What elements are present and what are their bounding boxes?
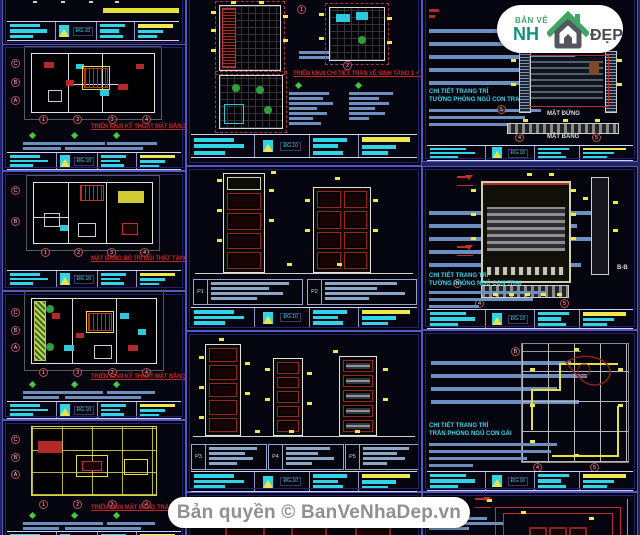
door-code: P5 (346, 445, 360, 469)
sheet-code: ĐG.10 (74, 275, 94, 284)
sheet-wall-decor-detail-2: B-B B 45 CHI TIẾT TRANG TRÍ TƯỜNG PHÒNG … (422, 166, 638, 330)
door-code: P4 (269, 445, 283, 469)
fixture (44, 213, 60, 227)
grid-col-bubbles: 1234 (39, 115, 151, 124)
wall-elevation (481, 181, 571, 283)
triangle-logo-icon (59, 25, 69, 37)
diamond-marker (113, 381, 120, 388)
diamond-marker (71, 132, 78, 139)
ceiling-soffit-polyline (552, 406, 618, 456)
sheet-code: ĐG.10 (280, 142, 300, 151)
title-block: ĐG.10 (7, 21, 179, 41)
hatch-strip (222, 8, 236, 68)
sheet-code: ĐG.10 (73, 27, 93, 36)
house-icon (547, 10, 589, 50)
furniture (128, 345, 138, 351)
annotation-mark (429, 15, 435, 18)
elevation-label: MẶT ĐỨNG (547, 111, 580, 117)
door-panels (343, 360, 373, 432)
door-code: P1 (194, 280, 208, 304)
door-spec-table: P3 (191, 444, 267, 470)
spec-lines (206, 445, 266, 469)
logo-name-left: NH (513, 24, 539, 45)
wood-detail (589, 61, 599, 75)
title-block: ĐG.10 (427, 309, 633, 329)
diamond-marker (71, 381, 78, 388)
fixture (100, 90, 109, 96)
door-elevation (273, 358, 303, 436)
sheet-ceiling-decor-detail: B CHI TIẾT TRANG TRÍ TRẦN PHÒNG NGỦ CON … (422, 330, 638, 492)
dimension-line (627, 499, 628, 535)
door-spec-table: P5 (345, 444, 419, 470)
room-fill (118, 191, 144, 203)
furniture (66, 80, 74, 86)
double-door-elevation (313, 187, 371, 273)
wall-line (116, 299, 117, 363)
diamond-marker (113, 512, 120, 519)
grid-bubble: 1 (297, 5, 307, 14)
triangle-logo-icon (263, 312, 273, 324)
ground-line (195, 273, 413, 274)
furniture (136, 64, 144, 69)
ceiling-soffit-polyline (532, 364, 618, 430)
sheet-code: ĐG.10 (74, 157, 94, 166)
furniture (44, 62, 54, 68)
plant (46, 343, 54, 351)
door-panels (344, 191, 368, 269)
title-block: ĐG.10 (191, 307, 417, 328)
tile-band (487, 267, 565, 275)
grid-bubble: 5 (497, 105, 507, 114)
plant (46, 305, 54, 313)
triangle-logo-icon (263, 476, 273, 488)
spec-lines (208, 280, 302, 304)
detail-title-line1: CHI TIẾT TRANG TRÍ (429, 423, 488, 430)
diamond-marker (71, 512, 78, 519)
hatch-strip (34, 301, 46, 361)
furniture (118, 84, 128, 90)
highlight-bar (103, 8, 179, 13)
sheet-caption: TRIỂN KHAI CHI TIẾT TRẦN VỆ SINH TẦNG 1 … (293, 71, 441, 77)
sheet-code: ĐG.10 (280, 477, 300, 486)
furniture (52, 313, 60, 319)
ceiling-panel (38, 441, 62, 453)
top-edge (483, 183, 569, 185)
title-block: ĐG.10 (7, 152, 181, 170)
louver-door-elevation (339, 356, 377, 436)
door-panels (277, 362, 299, 432)
spec-lines (360, 445, 418, 469)
floor-plan-drawing (33, 182, 153, 244)
cad-collage-page: ĐG.10 CBA 1234 TRIỂN KHAI KỸ THUẬT MẶT B… (0, 0, 640, 535)
fixture (64, 345, 74, 351)
sheet-crop-top-left: ĐG.10 (2, 0, 186, 46)
ceiling-detail-plan (219, 75, 283, 129)
sheet-code: ĐG.10 (508, 149, 528, 158)
fixture (336, 14, 350, 22)
furniture (122, 223, 138, 235)
floor-plan-drawing (31, 298, 157, 364)
copyright-text: Bản quyền © BanVeNhaDep.vn (177, 502, 461, 524)
sheet-caption: MẶT BẰNG BỐ TRÍ NỘI THẤT TẦNG 2 (91, 256, 193, 262)
door-code: P3 (192, 445, 206, 469)
fixture (94, 345, 112, 359)
ceiling-light (578, 364, 590, 376)
title-block: ĐG.10 (427, 145, 633, 161)
grid-bubbles: 45 (515, 133, 601, 142)
door-panels (317, 191, 341, 269)
fixture (78, 223, 96, 237)
door-spec-table: P1 (193, 279, 303, 305)
sheet-code: ĐG.10 (280, 313, 300, 322)
sheet-floor-plan-1: CBA 1234 TRIỂN KHAI KỸ THUẬT MẶT BẰNG TẦ… (2, 44, 186, 171)
fixture (356, 12, 368, 20)
title-block: ĐG.10 (191, 471, 417, 492)
note-lines (289, 92, 333, 125)
triangle-logo-icon (60, 155, 70, 167)
door-spec-table: P4 (268, 444, 344, 470)
ceiling-detail-plan (219, 5, 281, 71)
ceiling-detail (82, 461, 102, 471)
sheet-code: ĐG.10 (508, 477, 528, 486)
triangle-logo-icon (60, 273, 70, 285)
door-spec-table: P2 (307, 279, 417, 305)
title-block: ĐG.10 (427, 471, 633, 491)
sheet-code: ĐG.10 (508, 315, 528, 324)
diamond-marker (29, 512, 36, 519)
grid-row-bubbles: CBA (11, 308, 20, 352)
triangle-logo-icon (60, 404, 70, 416)
stair (80, 185, 104, 201)
wall-line (68, 183, 69, 243)
diamond-marker (29, 132, 36, 139)
triangle-logo-icon (492, 475, 502, 487)
diamond-marker (295, 82, 302, 89)
title-block: ĐG.10 (7, 401, 181, 419)
fixture (48, 90, 62, 102)
door-panels (209, 348, 237, 432)
title-block: ĐG.10 (191, 134, 417, 158)
triangle-logo-icon (492, 147, 502, 159)
ceiling-plan-drawing (31, 426, 157, 496)
stair (84, 68, 108, 88)
sheet-floor-plan-3: CBA 1234 TRIỂN KHAI KỸ THUẬT MẶT BẰNG TẦ… (2, 291, 186, 420)
grid-row-bubbles: CB (11, 186, 20, 226)
note-lines (349, 92, 393, 120)
plant (256, 86, 264, 94)
logo-name-right: ĐẸP (590, 27, 623, 45)
site-logo: BẢN VẼ NH ĐẸP (497, 5, 623, 53)
diamond-marker (355, 82, 362, 89)
floor-plan-drawing (31, 53, 155, 113)
detail-title-line1: CHI TIẾT TRANG TRÍ (429, 273, 488, 280)
note-list (289, 83, 333, 125)
section-strip (591, 177, 609, 275)
sheet-ceiling-plan: CBA 1234 TRIỂN KHAI MẶT BẰNG TRẦN TẦNG 1… (2, 420, 186, 535)
detail-title-line2: TƯỜNG PHÒNG NGỦ CON TRAI (429, 281, 521, 288)
spec-lines (283, 445, 343, 469)
ceiling-frame (124, 459, 148, 475)
annotation-mark (429, 9, 439, 12)
door-panels (227, 193, 261, 269)
copyright-badge: Bản quyền © BanVeNhaDep.vn (168, 497, 470, 528)
wall-line (106, 183, 107, 243)
spec-lines (322, 280, 416, 304)
sheet-door-elevations-2: P3 P4 P5 ĐG.10 (186, 331, 422, 492)
detail-title-line2: TƯỜNG PHÒNG NGỦ CON TRAI (429, 97, 521, 104)
slat-band (487, 207, 565, 251)
sheet-door-elevations-1: P1 P2 ĐG.10 (186, 166, 422, 331)
note-list (349, 83, 393, 120)
door-top (549, 527, 567, 535)
detail-title-line2: TRẦN PHÒNG NGỦ CON GÁI (429, 431, 512, 438)
plant (264, 106, 272, 114)
ceiling-curve-decor (566, 356, 610, 385)
fixture (138, 329, 146, 335)
furniture (76, 333, 84, 338)
sheet-ceiling-details: 1 2 TRIỂN KHAI CHI TIẾT TRẦN VỆ SINH TẦN… (186, 0, 422, 166)
triangle-logo-icon (263, 140, 273, 152)
grid-row-bubbles: CBA (11, 435, 20, 479)
door-code: P2 (308, 280, 322, 304)
diamond-marker (113, 132, 120, 139)
plant (232, 84, 240, 92)
wall-line (72, 299, 73, 363)
diamond-marker (29, 381, 36, 388)
fixture (120, 313, 129, 319)
door-top (569, 527, 587, 535)
section-label: B-B (617, 265, 628, 271)
grid-bubble: 2 (343, 61, 353, 70)
level-marker (475, 501, 491, 508)
grid-row-bubbles: CBA (11, 59, 20, 105)
door-elevation (205, 344, 241, 436)
door-top (529, 527, 547, 535)
bathtub (224, 104, 244, 124)
sheet-floor-plan-2: CB 1234 MẶT BẰNG BỐ TRÍ NỘI THẤT TẦNG 2 … (2, 171, 186, 291)
fixture (60, 225, 68, 231)
ceiling-detail-plan (329, 7, 385, 61)
title-block: ĐG.10 (7, 531, 181, 535)
detail-title-line1: CHI TIẾT TRANG TRÍ (429, 89, 488, 96)
sheet-code: ĐG.10 (74, 406, 94, 415)
grid-bubble: B (511, 347, 521, 356)
triangle-logo-icon (492, 313, 502, 325)
stair (88, 313, 112, 331)
plant (358, 36, 366, 44)
level-marker (457, 179, 473, 186)
door-elevation (223, 173, 265, 273)
door-transom (227, 177, 261, 190)
title-block: ĐG.10 (7, 270, 181, 288)
ground-line (193, 436, 415, 437)
